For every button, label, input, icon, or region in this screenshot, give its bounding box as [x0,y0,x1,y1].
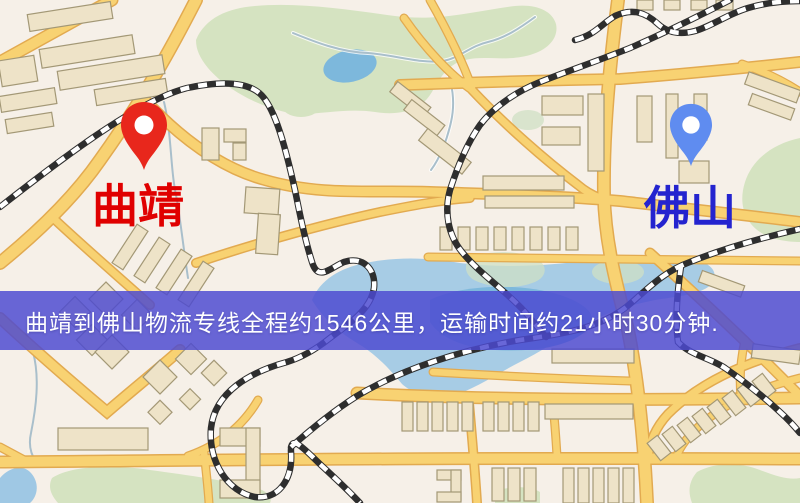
origin-pin-icon [120,101,168,171]
map-image: 曲靖 佛山 曲靖到佛山物流专线全程约1546公里，运输时间约21小时30分钟. [0,0,800,503]
route-banner: 曲靖到佛山物流专线全程约1546公里，运输时间约21小时30分钟. [0,291,800,350]
map-canvas [0,0,800,503]
destination-pin-icon [669,103,713,167]
route-banner-text: 曲靖到佛山物流专线全程约1546公里，运输时间约21小时30分钟. [25,304,719,338]
